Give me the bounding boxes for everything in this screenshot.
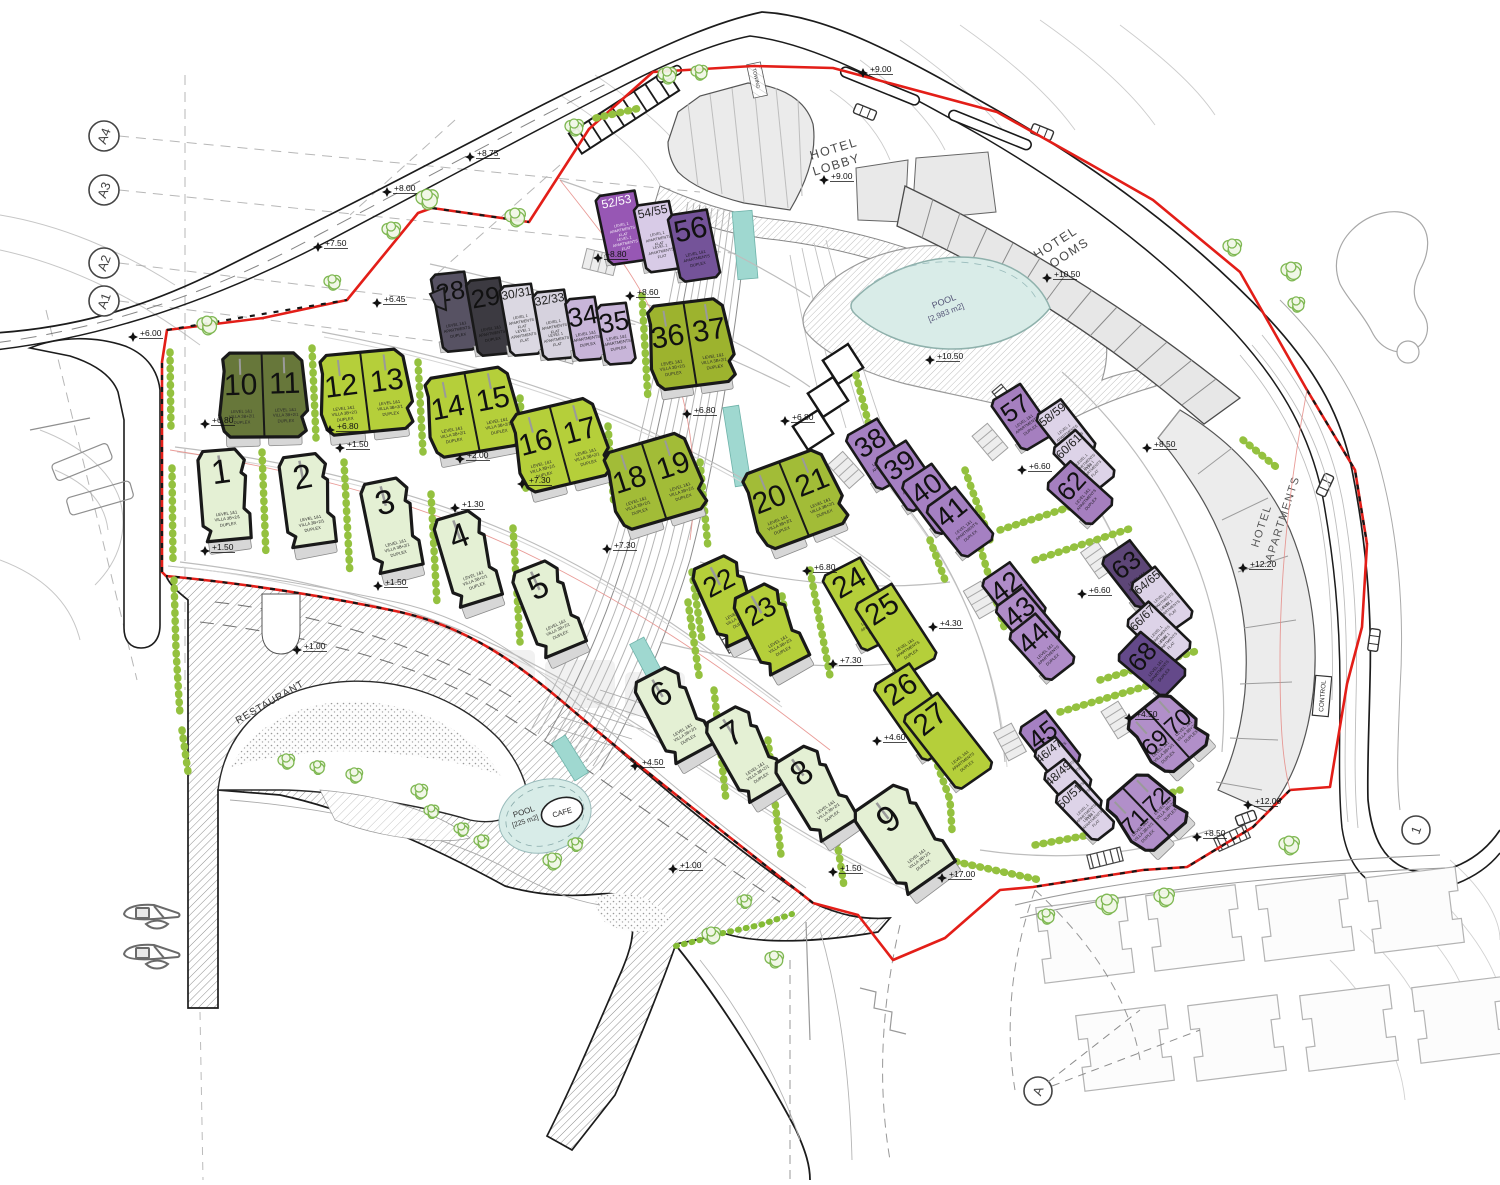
svg-text:37: 37 [690,311,728,349]
svg-text:+7.50: +7.50 [325,238,347,248]
svg-text:+6.80: +6.80 [212,415,234,425]
svg-text:13: 13 [368,362,405,399]
svg-text:+10.50: +10.50 [937,351,964,361]
svg-text:+1.50: +1.50 [385,577,407,587]
svg-text:+4.60: +4.60 [884,732,906,742]
svg-text:+6.80: +6.80 [694,405,716,415]
svg-text:DUPLEX: DUPLEX [277,418,294,424]
svg-text:+6.00: +6.00 [140,328,162,338]
svg-text:+1.00: +1.00 [304,641,326,651]
svg-text:11: 11 [268,367,300,401]
svg-text:+6.80: +6.80 [337,421,359,431]
svg-text:+6.60: +6.60 [1029,461,1051,471]
svg-text:36: 36 [649,318,687,356]
svg-text:+6.45: +6.45 [384,294,406,304]
svg-text:56: 56 [671,210,711,249]
svg-text:+1.00: +1.00 [680,860,702,870]
svg-text:+12.20: +12.20 [1250,559,1277,569]
svg-text:29: 29 [469,280,503,315]
svg-text:15: 15 [473,380,512,419]
svg-text:+7.30: +7.30 [529,475,551,485]
svg-text:+4.50: +4.50 [1136,709,1158,719]
svg-text:+9.00: +9.00 [870,64,892,74]
svg-text:DUPLEX: DUPLEX [233,419,250,425]
svg-text:14: 14 [428,389,467,428]
svg-text:+17.00: +17.00 [949,869,976,879]
svg-text:+4.30: +4.30 [940,618,962,628]
svg-text:+1.30: +1.30 [462,499,484,509]
svg-text:+7.30: +7.30 [614,540,636,550]
svg-text:+6.60: +6.60 [1089,585,1111,595]
svg-text:VILLA 3B+2/1: VILLA 3B+2/1 [273,412,300,418]
svg-text:+8.75: +8.75 [477,148,499,158]
svg-text:+4.50: +4.50 [642,757,664,767]
svg-text:+8.50: +8.50 [1204,828,1226,838]
svg-text:+1.50: +1.50 [212,542,234,552]
svg-text:+12.00: +12.00 [1255,796,1282,806]
svg-text:+6.80: +6.80 [792,412,814,422]
svg-text:+9.00: +9.00 [831,171,853,181]
svg-text:+6.80: +6.80 [814,562,836,572]
svg-text:+8.60: +8.60 [637,287,659,297]
svg-text:10: 10 [223,368,258,402]
svg-text:+8.50: +8.50 [1154,439,1176,449]
svg-text:+8.00: +8.00 [394,183,416,193]
svg-text:+2.00: +2.00 [467,450,489,460]
svg-text:+1.50: +1.50 [347,439,369,449]
svg-text:+10.50: +10.50 [1054,269,1081,279]
svg-text:+7.30: +7.30 [840,655,862,665]
svg-text:+8.80: +8.80 [605,249,627,259]
svg-text:+1.50: +1.50 [840,863,862,873]
svg-text:12: 12 [323,368,360,405]
